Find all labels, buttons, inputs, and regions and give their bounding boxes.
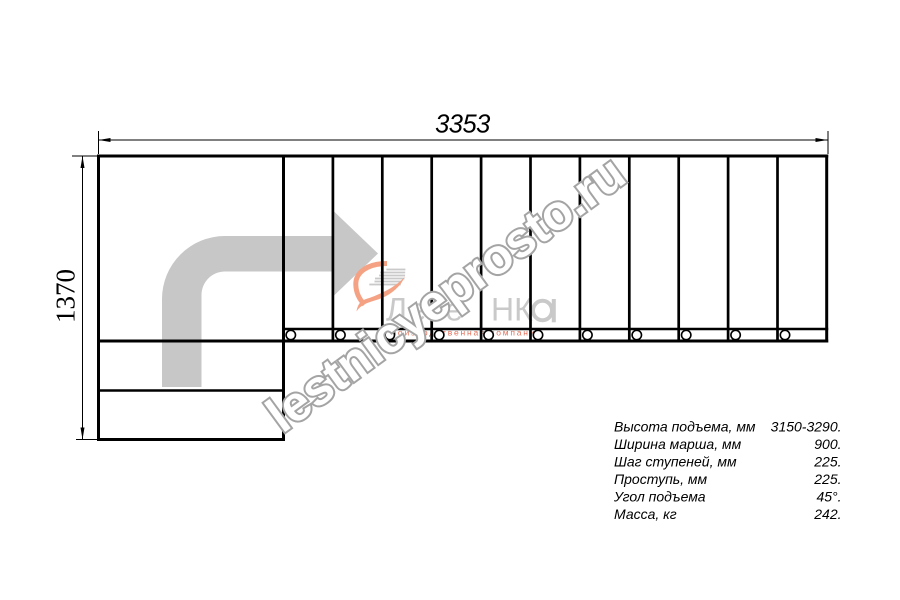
svg-text:Шаг ступеней, мм: Шаг ступеней, мм — [614, 454, 737, 470]
svg-text:Проступь, мм: Проступь, мм — [614, 471, 708, 487]
svg-text:225.: 225. — [813, 454, 841, 470]
svg-text:Ширина марша, мм: Ширина марша, мм — [614, 436, 742, 452]
svg-text:225.: 225. — [813, 471, 841, 487]
svg-text:900.: 900. — [814, 436, 841, 452]
svg-text:45°.: 45°. — [816, 489, 841, 505]
svg-text:lestnicyeprosto.ru: lestnicyeprosto.ru — [256, 145, 635, 443]
svg-text:Масса, кг: Масса, кг — [614, 506, 677, 522]
svg-text:1370: 1370 — [51, 269, 81, 323]
svg-text:3353: 3353 — [435, 111, 490, 139]
svg-text:НК: НК — [491, 292, 533, 328]
svg-text:3150-3290.: 3150-3290. — [771, 419, 842, 435]
svg-text:Угол подъема: Угол подъема — [613, 489, 706, 505]
svg-text:242.: 242. — [813, 506, 841, 522]
svg-text:Высота подъема, мм: Высота подъема, мм — [614, 419, 756, 435]
